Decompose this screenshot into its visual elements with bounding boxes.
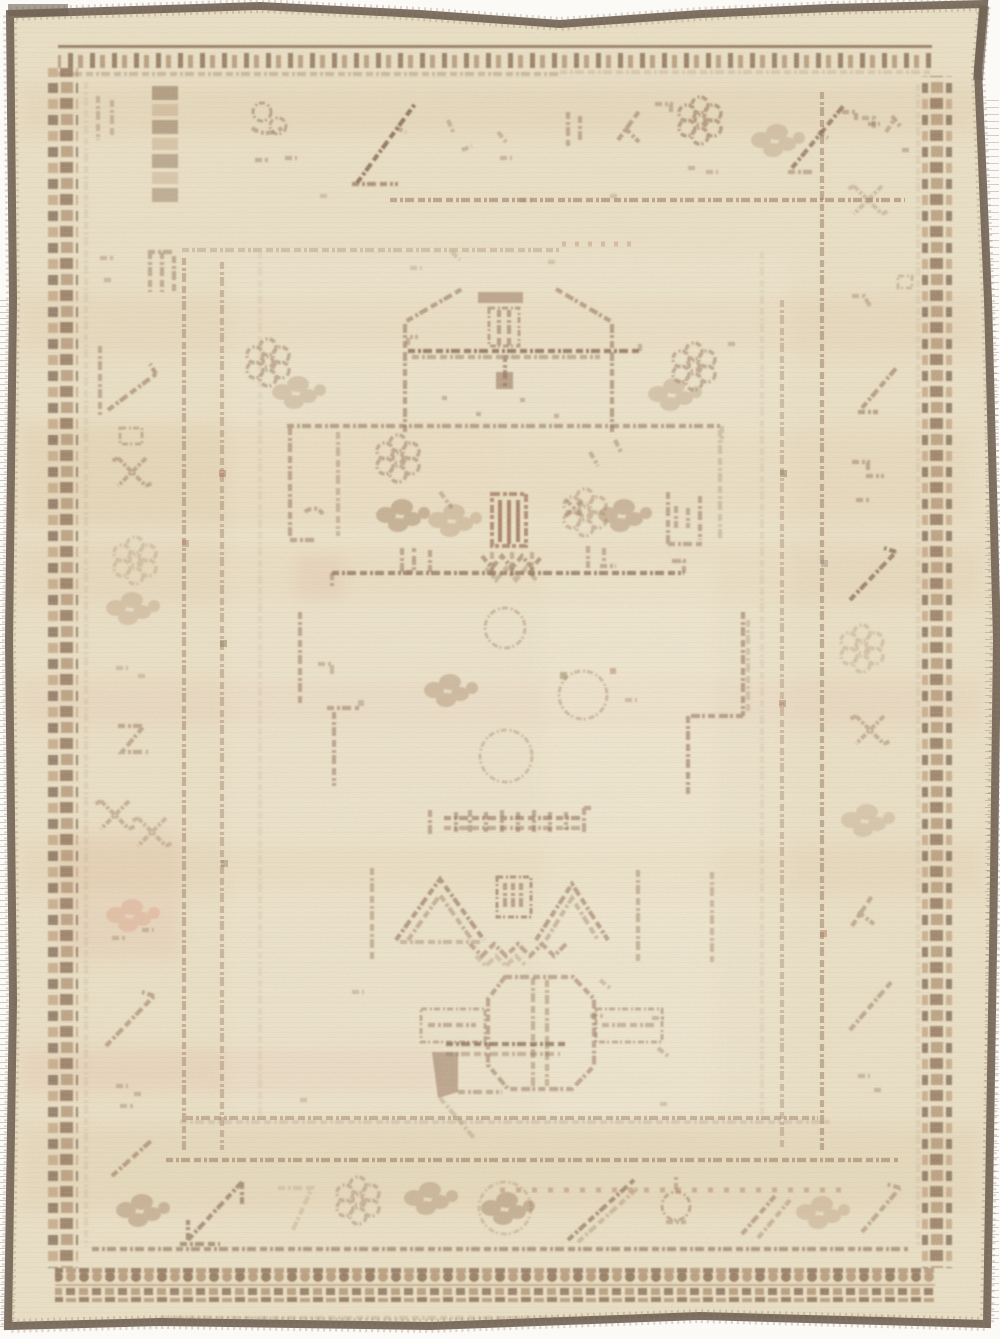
rug-image <box>0 0 1000 1339</box>
wool-texture <box>0 0 1000 1339</box>
rug-photograph <box>0 0 1000 1339</box>
